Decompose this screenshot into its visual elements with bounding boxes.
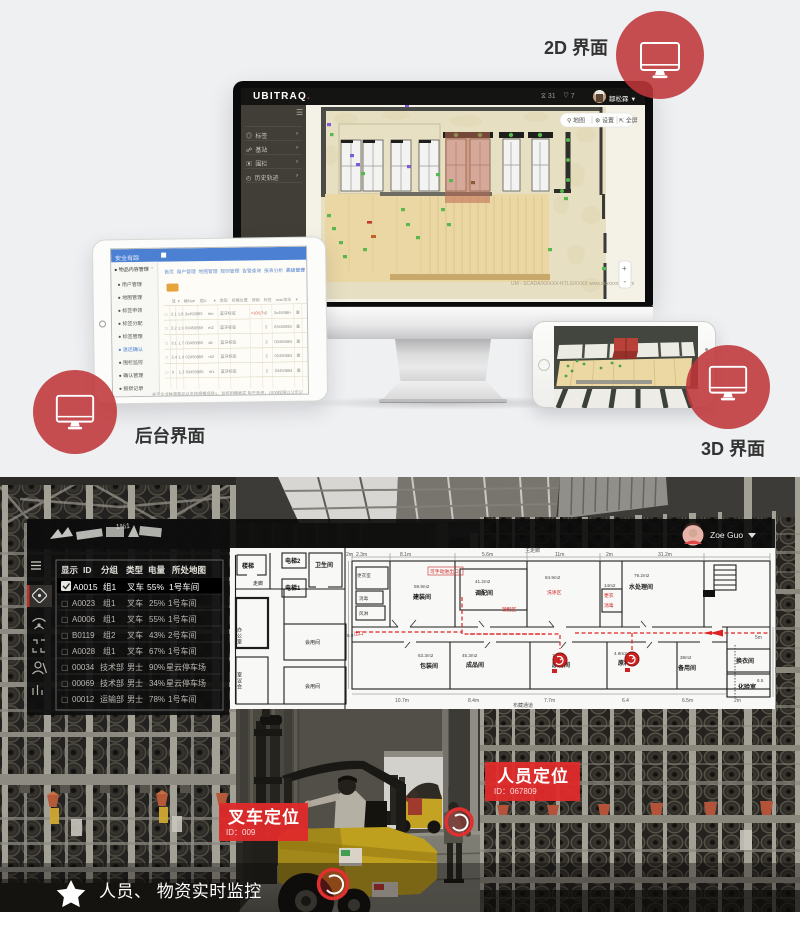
svg-text:▾: ▾ <box>178 298 180 303</box>
svg-text:▢: ▢ <box>61 647 69 656</box>
svg-text:分组: 分组 <box>101 565 119 575</box>
svg-text:星云停车场: 星云停车场 <box>166 662 206 672</box>
svg-text:1号车间: 1号车间 <box>168 694 196 704</box>
svg-text:▢: ▢ <box>61 615 69 624</box>
svg-text:显: 显 <box>172 298 176 303</box>
svg-text:叉车: 叉车 <box>127 614 143 624</box>
svg-text:组1: 组1 <box>103 582 117 592</box>
svg-text:包装间: 包装间 <box>420 662 438 670</box>
svg-text:备用间: 备用间 <box>677 664 696 672</box>
svg-text:1号车间: 1号车间 <box>168 598 196 608</box>
svg-text:1%1: 1%1 <box>116 523 131 531</box>
svg-text:⚲ 地图: ⚲ 地图 <box>567 117 585 125</box>
svg-text:03450869: 03450869 <box>185 325 204 330</box>
svg-text:查: 查 <box>296 338 300 344</box>
svg-text:38m2: 38m2 <box>680 655 692 660</box>
svg-text:1.9: 1.9 <box>178 354 184 359</box>
svg-text:1.3: 1.3 <box>179 369 185 374</box>
svg-text:办公室: 办公室 <box>236 626 242 645</box>
svg-text:UM - SCADA/XXXXX-RTLS/XXXX www: UM - SCADA/XXXXX-RTLS/XXXX www.xxxxxxxxx… <box>511 281 634 287</box>
svg-text:风淋: 风淋 <box>359 610 369 617</box>
svg-text:组1: 组1 <box>103 646 116 656</box>
svg-text:查: 查 <box>296 309 300 315</box>
svg-text:所属位置: 所属位置 <box>232 296 248 302</box>
svg-text:蓝牙标签: 蓝牙标签 <box>220 353 236 359</box>
svg-text:-: - <box>624 277 627 286</box>
svg-text:电量: 电量 <box>148 565 166 575</box>
svg-text:a5: a5 <box>208 340 213 345</box>
svg-text:00069: 00069 <box>72 679 95 688</box>
svg-text:锁配区: 锁配区 <box>502 606 517 613</box>
svg-text:蓝牙标签: 蓝牙标签 <box>221 368 237 374</box>
svg-text:mn: mn <box>208 311 214 316</box>
svg-text:6.8: 6.8 <box>347 633 354 638</box>
svg-text:叉车定位: 叉车定位 <box>227 807 300 827</box>
svg-text:10.7m: 10.7m <box>395 698 409 704</box>
svg-text:1.7: 1.7 <box>178 340 184 345</box>
svg-text:显示: 显示 <box>61 565 79 575</box>
svg-text:会用间: 会用间 <box>305 639 320 646</box>
svg-text:2m: 2m <box>606 552 613 558</box>
svg-text:组1: 组1 <box>103 598 116 608</box>
svg-text:蓝牙标签: 蓝牙标签 <box>220 310 236 316</box>
svg-text:m2: m2 <box>208 354 214 359</box>
svg-text:叉车: 叉车 <box>127 598 143 608</box>
svg-text:组1: 组1 <box>103 614 116 624</box>
svg-text:□: □ <box>165 355 168 360</box>
svg-text:布藏通道: 布藏通道 <box>513 702 533 709</box>
svg-text:55%: 55% <box>149 615 165 624</box>
svg-text:成品间: 成品间 <box>466 661 484 669</box>
svg-text:6.5m: 6.5m <box>682 698 693 704</box>
svg-text:45.3m2: 45.3m2 <box>462 653 478 658</box>
svg-text:蓝牙标签: 蓝牙标签 <box>220 339 236 345</box>
svg-text:卫生间: 卫生间 <box>315 561 333 569</box>
svg-text:电梯1: 电梯1 <box>285 584 301 592</box>
svg-text:2: 2 <box>266 368 269 373</box>
svg-text:3x45086+: 3x45086+ <box>274 310 292 315</box>
svg-text:更衣: 更衣 <box>604 592 614 599</box>
svg-text:9: 9 <box>172 369 175 374</box>
svg-text:2.4: 2.4 <box>171 354 177 359</box>
svg-text:叉车: 叉车 <box>127 646 143 656</box>
svg-text:调配间: 调配间 <box>475 589 493 597</box>
svg-text:m2: m2 <box>208 325 214 330</box>
svg-text:洗涤区: 洗涤区 <box>547 589 562 596</box>
svg-text:90%: 90% <box>149 663 165 672</box>
svg-text:A0015: A0015 <box>73 582 98 592</box>
svg-text:4.8m2: 4.8m2 <box>614 651 627 656</box>
svg-text:消毒: 消毒 <box>359 595 369 602</box>
svg-text:59.9m2: 59.9m2 <box>414 584 430 589</box>
svg-text:m1: m1 <box>209 369 215 374</box>
svg-text:▢: ▢ <box>61 679 69 688</box>
svg-text:人员、 物资实时监控: 人员、 物资实时监控 <box>99 882 262 901</box>
svg-text:84.9m2: 84.9m2 <box>545 575 561 580</box>
svg-text:▾: ▾ <box>296 297 298 302</box>
svg-text:A0006: A0006 <box>72 615 96 624</box>
svg-text:ID: ID <box>83 565 92 575</box>
svg-text:类型: 类型 <box>126 565 144 575</box>
svg-text:室议会: 室议会 <box>236 671 242 690</box>
svg-text:5m: 5m <box>755 635 762 641</box>
svg-text:⇱ 全屏: ⇱ 全屏 <box>619 117 638 125</box>
svg-text:03450869: 03450869 <box>185 340 204 345</box>
svg-text:▾: ▾ <box>214 298 216 303</box>
svg-text:▢: ▢ <box>61 599 69 608</box>
svg-text:1.9: 1.9 <box>178 325 184 330</box>
svg-text:2: 2 <box>265 310 268 315</box>
svg-text:A0028: A0028 <box>72 647 96 656</box>
svg-text:编Na▾: 编Na▾ <box>184 297 195 303</box>
svg-text:79.2m2: 79.2m2 <box>634 573 650 578</box>
svg-text:运输部: 运输部 <box>100 694 124 704</box>
svg-text:5.6m: 5.6m <box>482 552 493 558</box>
svg-text:+: + <box>622 264 627 273</box>
svg-text:67%: 67% <box>149 647 165 656</box>
svg-text:查: 查 <box>296 352 300 358</box>
svg-text:mac地址: mac地址 <box>276 296 292 302</box>
svg-text:B0119: B0119 <box>72 631 95 640</box>
svg-text:换衣间: 换衣间 <box>736 657 754 665</box>
svg-text:8.4m: 8.4m <box>468 698 479 704</box>
svg-text:1号车间: 1号车间 <box>169 582 199 592</box>
svg-text:6.4: 6.4 <box>622 698 629 704</box>
svg-text:会用间: 会用间 <box>305 683 320 690</box>
svg-text:1号车间: 1号车间 <box>168 614 196 624</box>
svg-text:2.2: 2.2 <box>171 325 177 330</box>
svg-text:ID：067809: ID：067809 <box>494 787 537 796</box>
svg-text:55%: 55% <box>147 582 164 592</box>
svg-text:43%: 43% <box>149 631 165 640</box>
svg-text:34%: 34% <box>149 679 165 688</box>
svg-text:6.5: 6.5 <box>757 678 764 683</box>
svg-text:▢: ▢ <box>61 695 69 704</box>
svg-text:消毒: 消毒 <box>604 602 614 609</box>
svg-text:2: 2 <box>265 339 268 344</box>
svg-text:届A: 届A <box>200 298 207 303</box>
svg-text:2m: 2m <box>346 552 353 558</box>
svg-text:7.7m: 7.7m <box>544 698 555 704</box>
svg-text:03450869: 03450869 <box>186 369 205 374</box>
svg-text:主走廊: 主走廊 <box>525 547 540 554</box>
svg-text:2.1: 2.1 <box>171 311 177 316</box>
svg-text:1号车间: 1号车间 <box>168 646 196 656</box>
svg-text:走廊: 走廊 <box>253 580 263 587</box>
svg-text:78%: 78% <box>149 695 165 704</box>
svg-text:更衣室: 更衣室 <box>357 572 371 579</box>
svg-text:02450869: 02450869 <box>185 354 204 359</box>
svg-text:03450864: 03450864 <box>275 368 294 373</box>
svg-text:00012: 00012 <box>72 695 95 704</box>
svg-text:所处地图: 所处地图 <box>171 565 206 575</box>
svg-text:2号车间: 2号车间 <box>168 630 196 640</box>
svg-text:2: 2 <box>265 353 268 358</box>
svg-text:化验室: 化验室 <box>738 683 756 691</box>
svg-text:可手动进出口: 可手动进出口 <box>430 568 459 575</box>
svg-text:00034: 00034 <box>72 663 95 672</box>
svg-text:02450864: 02450864 <box>274 353 293 358</box>
svg-text:建装间: 建装间 <box>413 593 431 601</box>
svg-text:使用: 使用 <box>252 296 260 302</box>
svg-text:楼梯: 楼梯 <box>242 562 254 570</box>
svg-text:14m2: 14m2 <box>604 583 616 588</box>
svg-text:星云停车场: 星云停车场 <box>166 678 206 688</box>
svg-text:□: □ <box>165 341 168 346</box>
svg-text:3.1: 3.1 <box>171 340 177 345</box>
svg-text:□: □ <box>165 312 168 317</box>
svg-text:2m: 2m <box>734 698 741 704</box>
svg-text:11m: 11m <box>555 552 564 558</box>
svg-text:男士: 男士 <box>127 662 143 672</box>
svg-text:03450864: 03450864 <box>274 339 293 344</box>
svg-text:□: □ <box>166 370 169 375</box>
svg-text:技术部: 技术部 <box>100 678 124 688</box>
svg-text:A0023: A0023 <box>72 599 96 608</box>
svg-text:ID：009: ID：009 <box>226 828 256 837</box>
svg-text:男士: 男士 <box>127 678 143 688</box>
svg-text:▢: ▢ <box>61 631 69 640</box>
svg-text:31.2m: 31.2m <box>658 552 672 558</box>
svg-text:查: 查 <box>297 367 301 373</box>
svg-text:03450864: 03450864 <box>274 324 293 329</box>
svg-text:水处理间: 水处理间 <box>629 583 653 591</box>
svg-text:▢: ▢ <box>61 663 69 672</box>
svg-text:男士: 男士 <box>127 694 143 704</box>
svg-text:类型: 类型 <box>220 297 228 303</box>
svg-text:8.1m: 8.1m <box>400 552 411 558</box>
svg-text:41.2m2: 41.2m2 <box>475 579 491 584</box>
svg-text:叉车: 叉车 <box>127 582 144 592</box>
svg-text:3x450869: 3x450869 <box>185 311 203 316</box>
svg-text:技术部: 技术部 <box>100 662 124 672</box>
svg-text:查: 查 <box>296 323 300 329</box>
svg-text:Zoe Guo: Zoe Guo <box>710 530 743 540</box>
svg-text:组2: 组2 <box>103 630 116 640</box>
svg-text:人员定位: 人员定位 <box>497 766 569 786</box>
svg-text:叉车: 叉车 <box>127 630 143 640</box>
svg-text:1.8: 1.8 <box>178 311 184 316</box>
svg-text:蓝牙标签: 蓝牙标签 <box>220 324 236 330</box>
svg-text:25%: 25% <box>149 599 165 608</box>
svg-text:□: □ <box>165 326 168 331</box>
svg-text:63.3m2: 63.3m2 <box>418 653 434 658</box>
svg-text:电梯2: 电梯2 <box>285 557 301 565</box>
svg-text:⚙ 设置: ⚙ 设置 <box>595 117 614 125</box>
svg-text:2: 2 <box>265 324 268 329</box>
svg-text:2.3m: 2.3m <box>356 552 367 558</box>
svg-text:出口: 出口 <box>354 630 364 637</box>
svg-text:标签: 标签 <box>264 296 272 302</box>
